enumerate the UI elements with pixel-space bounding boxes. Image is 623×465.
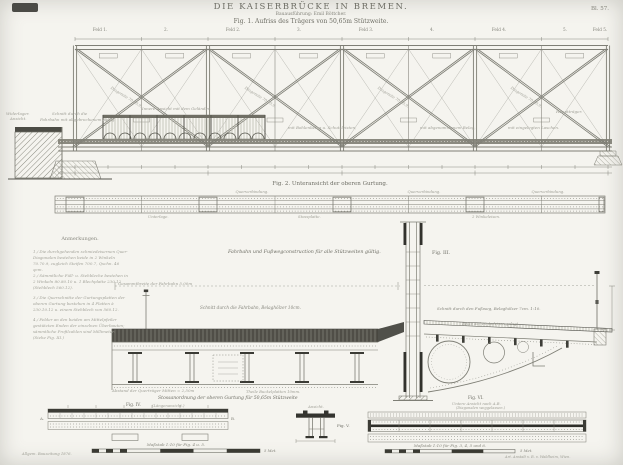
- panel-label: 4.: [430, 28, 434, 32]
- panel-label: 5.: [563, 28, 567, 32]
- note-item: 4./ Felder an den beiden am Mittelpfeile…: [33, 317, 129, 341]
- fig5-label: Fig. V.: [337, 424, 350, 428]
- fig2-label: Unterlage.: [148, 215, 169, 219]
- footway-cut-label: Schnitt durch den Fußweg, Belaghölzer 7c…: [437, 307, 541, 311]
- note-item: 2./ Sämmtliche Füll- u. Stehbleche beste…: [33, 273, 129, 291]
- fig2-plan-strip: [55, 196, 605, 213]
- fig4-label: Fig. IV.: [126, 403, 141, 407]
- fig3-label: Fig. III.: [432, 252, 450, 257]
- scale-caption-left: Maßstab 1:10 für Fig. 4 u. 5.: [147, 443, 205, 447]
- railing-label: Innere Ansicht mit dem Geländer.: [142, 107, 211, 111]
- cross-girders: [128, 352, 364, 383]
- plate-note-label: Theile Buckelplatten 10mm.: [246, 390, 300, 394]
- panel-label: 2.: [164, 28, 168, 32]
- roadway-cut-label: Schnitt durch die Fahrbahn, Belaghölzer …: [200, 306, 301, 310]
- footway-note: Belag auf Winkeleisen gelegt.: [462, 322, 519, 326]
- engraving-plate: DIE KAISERBRÜCKE IN BREMEN. Bauausführun…: [0, 0, 623, 465]
- roadway-width-label: Gesammtbreite der Fahrbahn 5,00m: [118, 282, 192, 286]
- scale-end-right: 5 Met.: [520, 449, 533, 453]
- abutment: [8, 127, 112, 179]
- deck-phrase: mit eingelegten Laschen.: [508, 126, 559, 130]
- girder-spacing-label: Abstand der Querträger Mitten = 2,50m: [112, 389, 194, 393]
- notes-header: Anmerkungen.: [61, 237, 98, 242]
- scale-caption-right: Maßstab 1:10 für Fig. 3, 4, 5 und 6.: [414, 444, 486, 448]
- fig2-label: Querverbindung.: [408, 190, 441, 194]
- panel-label: Feld 4.: [492, 28, 507, 32]
- fig6-label: Fig. VI.: [468, 396, 484, 400]
- main-girder-label: Hauptträger.: [556, 110, 582, 114]
- fig5-view-label: Ansicht.: [308, 405, 324, 409]
- panel-label: Feld 2.: [226, 28, 241, 32]
- panel-label: 3.: [297, 28, 301, 32]
- fig2-label: Querverbindung.: [236, 190, 269, 194]
- fig3-caption: Fahrbahn und Fußwegconstruction für alle…: [228, 251, 381, 256]
- truss-post-section: [393, 222, 433, 401]
- plate-title: DIE KAISERBRÜCKE IN BREMEN.: [214, 3, 409, 12]
- fig2-label: Querverbindung.: [532, 190, 565, 194]
- scan-artifact: [12, 3, 38, 12]
- fig4-strips: [48, 405, 228, 441]
- point-b-label: B.: [231, 417, 235, 421]
- deck-cut-label: Schnitt durch die: [52, 112, 87, 116]
- imprint-right: Art. Anstalt v. R. v. Waldheim, Wien.: [505, 456, 571, 460]
- panel-label: Feld 3.: [359, 28, 374, 32]
- deck-phrase: mit abgenommenem Belag,: [420, 126, 476, 130]
- engraving-canvas: [0, 0, 623, 465]
- plate-number: Bl. 57.: [591, 7, 609, 13]
- fig3-section: [112, 222, 615, 401]
- scale-bar-right: [385, 450, 515, 453]
- fig5-section: [296, 411, 335, 444]
- fig4-sub: (Längenansicht.): [152, 404, 185, 408]
- stoss-caption: Stossanordnung der oberen Gurtung für 50…: [158, 397, 298, 402]
- fig2-label: 2 Winkeleisen.: [472, 215, 500, 219]
- imprint-left: Allgem. Bauzeitung 1876.: [22, 452, 72, 456]
- footway-console: [424, 271, 612, 392]
- fig1-truss-drawing: [8, 37, 622, 179]
- point-a-label: A.: [40, 417, 44, 421]
- panel-label: Feld 1.: [93, 28, 108, 32]
- scale-bar-left: [92, 449, 260, 453]
- fig2-label: Stossplatte.: [298, 215, 321, 219]
- fig6-strips: [368, 412, 586, 442]
- fig2-caption: Fig. 2. Unteransicht der oberen Gurtung.: [272, 182, 387, 188]
- railing-detail: [103, 115, 265, 139]
- fig6-sub: (Diagonalen weggelassen.): [456, 407, 505, 411]
- fig1-caption: Fig. 1. Aufriss des Trägers von 50,65m S…: [234, 19, 389, 25]
- note-item: 3./ Die Querschnitte der Gurtungsplatten…: [33, 295, 129, 313]
- panel-label: Feld 5.: [593, 28, 608, 32]
- scale-end-left: 5 Met.: [264, 449, 277, 453]
- plate-subtitle: Bauausführung: Emil Böttcher.: [276, 13, 347, 18]
- deck-cut-label: Fahrbahn mit abgebrochenem Belag.: [40, 118, 115, 122]
- deck-phrase: mit Bohlenbelag u. Schutzleisten,: [288, 126, 356, 130]
- note-item: 1./ Die durchgehenden schmiedeisernen Qu…: [33, 249, 129, 273]
- abutment-label: Ansicht.: [10, 117, 27, 121]
